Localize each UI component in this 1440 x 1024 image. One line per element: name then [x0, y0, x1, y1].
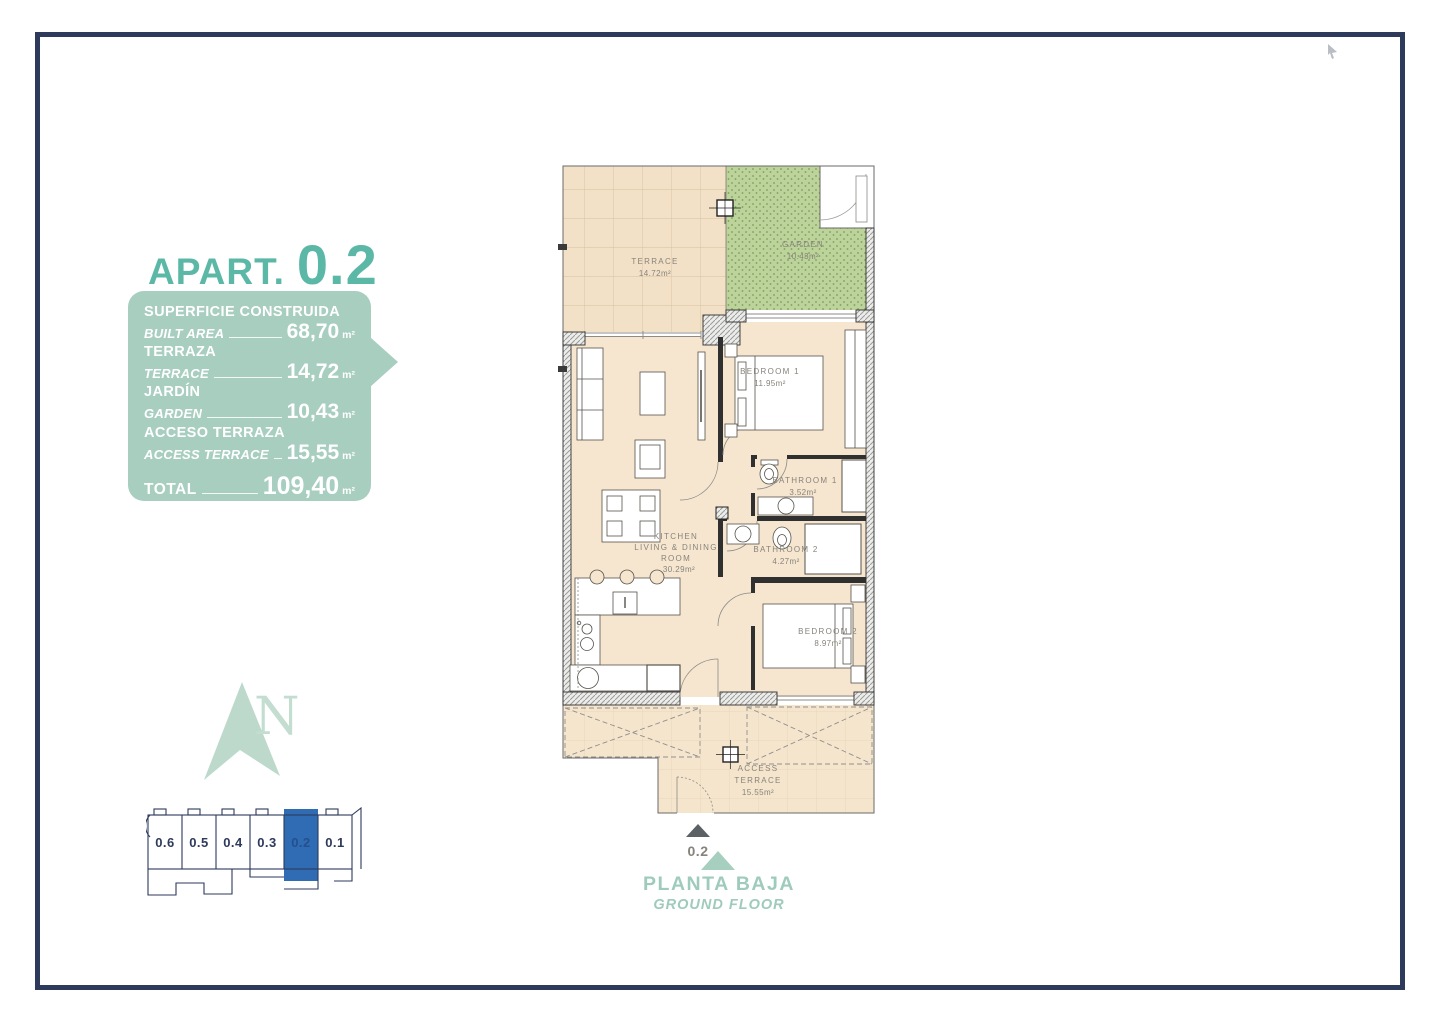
garden-area: 10.43m² [787, 252, 819, 261]
row-unit: m² [342, 330, 355, 341]
bedroom2-area: 8.97m² [814, 639, 841, 648]
north-arrow: N [192, 676, 310, 794]
row-label-es: TERRAZA [144, 343, 355, 361]
floor-indicator: PLANTA BAJA GROUND FLOOR [619, 873, 819, 913]
bedroom1-label: BEDROOM 1 [740, 367, 800, 376]
total-value: 109,40 [263, 473, 339, 499]
locator-unit-0.4: 0.4 [223, 835, 243, 850]
garden-label: GARDEN [782, 240, 824, 249]
row-label-en: ACCESS TERRACE [144, 448, 269, 462]
floor-name-en: GROUND FLOOR [619, 897, 819, 913]
row-unit: m² [342, 410, 355, 421]
total-label: TOTAL [144, 482, 197, 498]
floor-plan: TERRACE 14.72m² GARDEN 10.43m² BEDROOM 1… [555, 160, 885, 860]
row-label-en: TERRACE [144, 367, 209, 381]
bathroom1-area: 3.52m² [789, 488, 816, 497]
row-value: 14,72 [287, 361, 340, 383]
access-terrace-area: 15.55m² [742, 788, 774, 797]
garden-closet [856, 176, 867, 222]
panel-arrow-icon [370, 337, 398, 387]
page: { "apartment": {"label": "APART.", "numb… [0, 0, 1440, 1024]
leader-line [202, 493, 258, 494]
leader-line [274, 458, 282, 459]
leader-line [229, 337, 281, 338]
kitchen-label-3: ROOM [661, 554, 691, 563]
locator-outline [146, 808, 361, 895]
row-label-es: ACCESO TERRAZA [144, 424, 355, 442]
building-locator-map: 0.6 0.5 0.4 0.3 0.2 0.1 [146, 801, 366, 911]
locator-unit-0.1: 0.1 [325, 835, 345, 850]
apartment-number: 0.2 [297, 232, 378, 297]
row-value: 10,43 [287, 401, 340, 423]
apartment-label: APART. [148, 251, 285, 293]
locator-unit-0.5: 0.5 [189, 835, 209, 850]
row-unit: m² [342, 370, 355, 381]
row-value: 68,70 [287, 321, 340, 343]
locator-unit-0.2: 0.2 [291, 835, 311, 850]
summary-row: ACCESS TERRACE 15,55 m² [144, 442, 355, 464]
leader-line [214, 377, 282, 378]
locator-unit-0.6: 0.6 [155, 835, 175, 850]
floor-indicator-triangle-icon [701, 851, 735, 870]
row-unit: m² [342, 451, 355, 462]
kitchen-label-1: KITCHEN [654, 532, 698, 541]
row-value: 15,55 [287, 442, 340, 464]
bathroom2-area: 4.27m² [772, 557, 799, 566]
column [716, 507, 728, 519]
kitchen-label-2: LIVING & DINING [634, 543, 718, 552]
kitchen-area: 30.29m² [663, 565, 695, 574]
bathroom2-label: BATHROOM 2 [753, 545, 818, 554]
floor-name-es: PLANTA BAJA [619, 873, 819, 896]
leader-line [207, 417, 281, 418]
locator-unit-0.3: 0.3 [257, 835, 277, 850]
north-letter: N [254, 687, 300, 747]
summary-row: BUILT AREA 68,70 m² [144, 321, 355, 343]
access-terrace-label-2: TERRACE [734, 776, 781, 785]
summary-row: TERRACE 14,72 m² [144, 361, 355, 383]
row-label-es: SUPERFICIE CONSTRUIDA [144, 303, 355, 321]
terrace-floor [563, 166, 726, 332]
page-title: APART. 0.2 [148, 232, 378, 297]
row-label-en: BUILT AREA [144, 327, 224, 341]
entrance-arrow-icon [686, 824, 710, 837]
bedroom1-area: 11.95m² [754, 379, 786, 388]
row-label-es: JARDÍN [144, 383, 355, 401]
terrace-area: 14.72m² [639, 269, 671, 278]
mouse-cursor [1327, 44, 1339, 60]
access-terrace-floor [563, 705, 874, 813]
summary-total-row: TOTAL 109,40 m² [144, 473, 355, 499]
access-terrace-label-1: ACCESS [738, 764, 779, 773]
summary-row: GARDEN 10,43 m² [144, 401, 355, 423]
bathroom1-label: BATHROOM 1 [772, 476, 837, 485]
row-label-en: GARDEN [144, 407, 202, 421]
total-unit: m² [342, 486, 355, 497]
bedroom2-label: BEDROOM 2 [798, 627, 858, 636]
terrace-label: TERRACE [631, 257, 678, 266]
surface-summary-panel: SUPERFICIE CONSTRUIDA BUILT AREA 68,70 m… [128, 291, 371, 501]
